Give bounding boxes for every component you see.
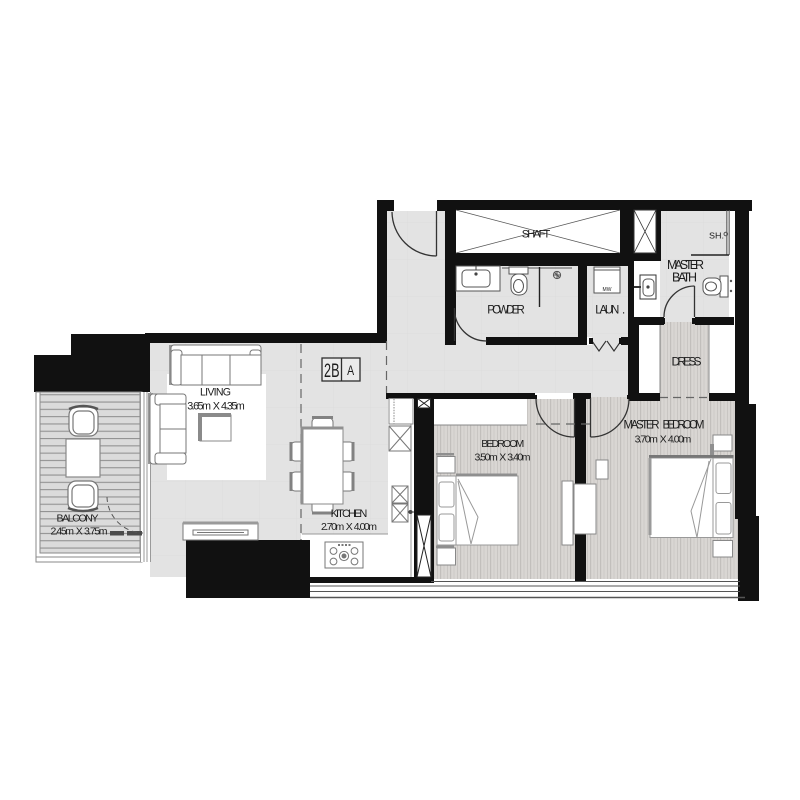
svg-text:LIVING: LIVING: [200, 386, 231, 398]
svg-text:MASTER: MASTER: [624, 419, 660, 431]
svg-text:BEDROOM: BEDROOM: [663, 419, 705, 431]
svg-text:BATH: BATH: [672, 271, 697, 285]
svg-text:SHAFT: SHAFT: [522, 229, 551, 241]
svg-text:2B: 2B: [324, 361, 340, 382]
svg-text:.: .: [622, 305, 625, 317]
svg-text:3.75m: 3.75m: [84, 526, 108, 538]
svg-text:2.70m: 2.70m: [321, 521, 344, 533]
svg-text:3.50m: 3.50m: [475, 451, 498, 463]
svg-text:2.45m: 2.45m: [51, 526, 75, 538]
svg-text:X: X: [499, 451, 506, 463]
svg-text:4.00m: 4.00m: [668, 434, 692, 446]
svg-text:X: X: [660, 434, 667, 446]
svg-text:X: X: [346, 521, 353, 533]
svg-text:POWDER: POWDER: [487, 305, 525, 317]
svg-text:3.40m: 3.40m: [507, 451, 530, 463]
svg-text:X: X: [213, 401, 220, 413]
svg-text:4.35m: 4.35m: [221, 401, 245, 413]
svg-text:X: X: [76, 526, 83, 538]
svg-text:LAUN: LAUN: [595, 305, 619, 317]
svg-text:3.65m: 3.65m: [187, 401, 211, 413]
svg-text:BALCONY: BALCONY: [57, 512, 99, 524]
svg-text:KITCHEN: KITCHEN: [331, 508, 368, 520]
svg-text:BEDROOM: BEDROOM: [481, 438, 524, 450]
svg-text:MW: MW: [603, 287, 612, 293]
svg-text:4.00m: 4.00m: [354, 521, 377, 533]
svg-text:3.70m: 3.70m: [635, 434, 659, 446]
svg-text:A: A: [347, 362, 354, 378]
svg-text:DRESS: DRESS: [672, 355, 702, 369]
svg-text:SH.: SH.: [709, 232, 724, 241]
